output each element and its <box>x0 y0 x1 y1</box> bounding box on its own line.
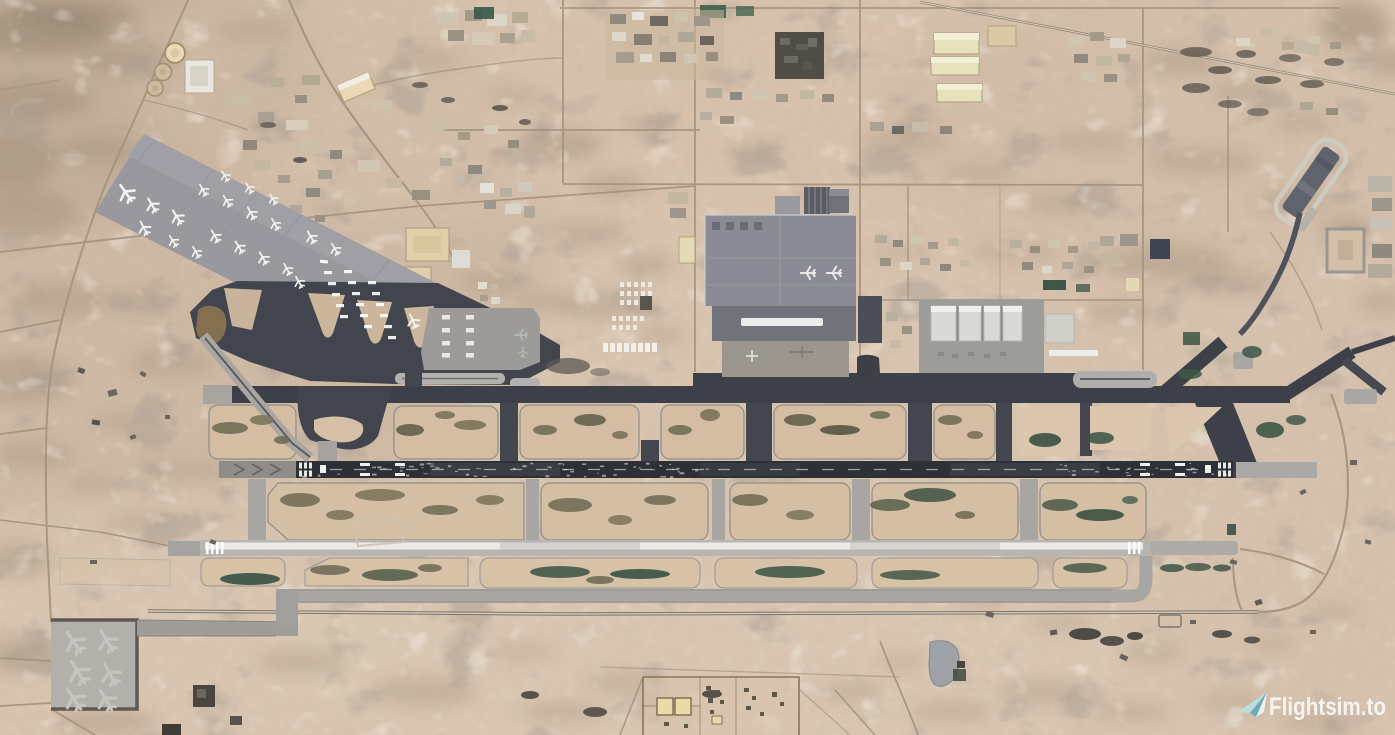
svg-text:Flightsim.to: Flightsim.to <box>1269 693 1386 721</box>
